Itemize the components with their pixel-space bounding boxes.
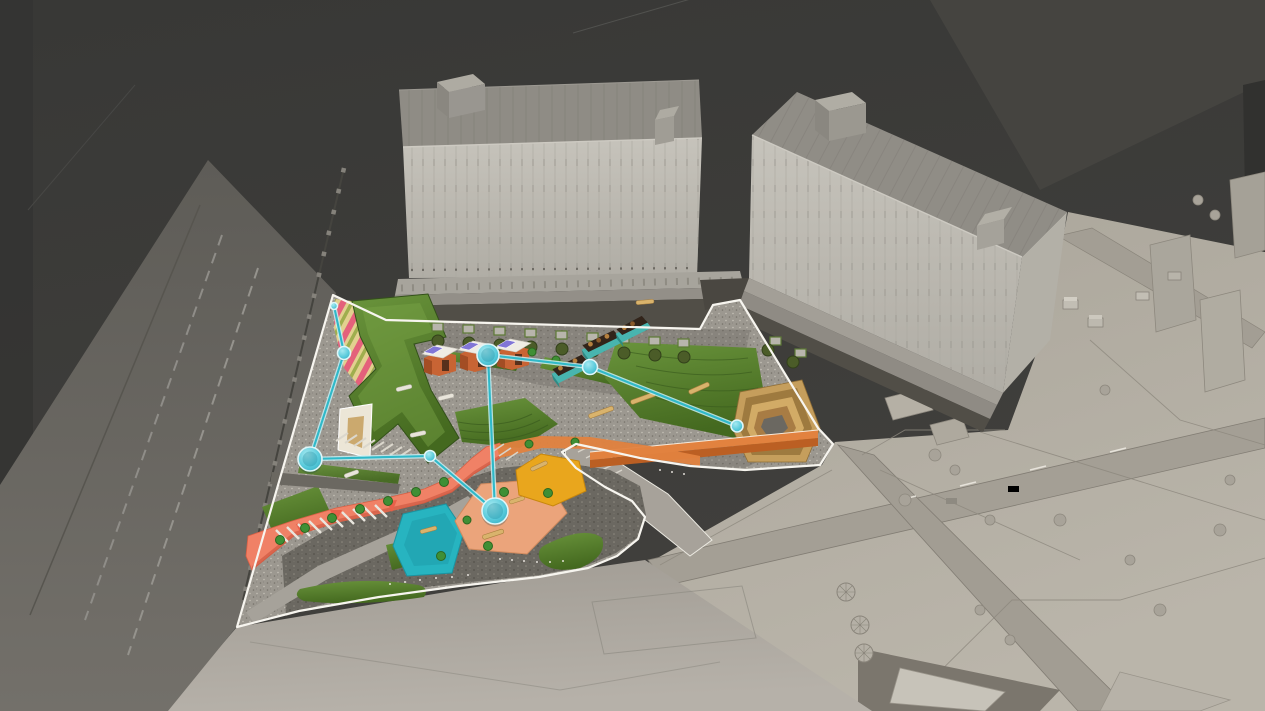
building-1-rooftop-unit xyxy=(437,74,485,118)
connection-node xyxy=(731,420,743,432)
playground-teal xyxy=(393,504,464,576)
building-2-rooftop-unit xyxy=(815,92,866,141)
connection-node xyxy=(331,303,338,310)
connection-node-core xyxy=(487,503,503,519)
building-1-facade-grid xyxy=(403,138,702,278)
context-car xyxy=(946,498,957,504)
render-viewport xyxy=(0,0,1265,711)
building-1 xyxy=(389,74,752,330)
connection-node-core xyxy=(481,348,495,362)
connection-node-core xyxy=(303,452,318,467)
connection-node xyxy=(338,347,351,360)
masterplan-render xyxy=(0,0,1265,711)
connection-node xyxy=(425,451,436,462)
connection-node xyxy=(583,360,598,375)
context-car xyxy=(1008,486,1019,492)
